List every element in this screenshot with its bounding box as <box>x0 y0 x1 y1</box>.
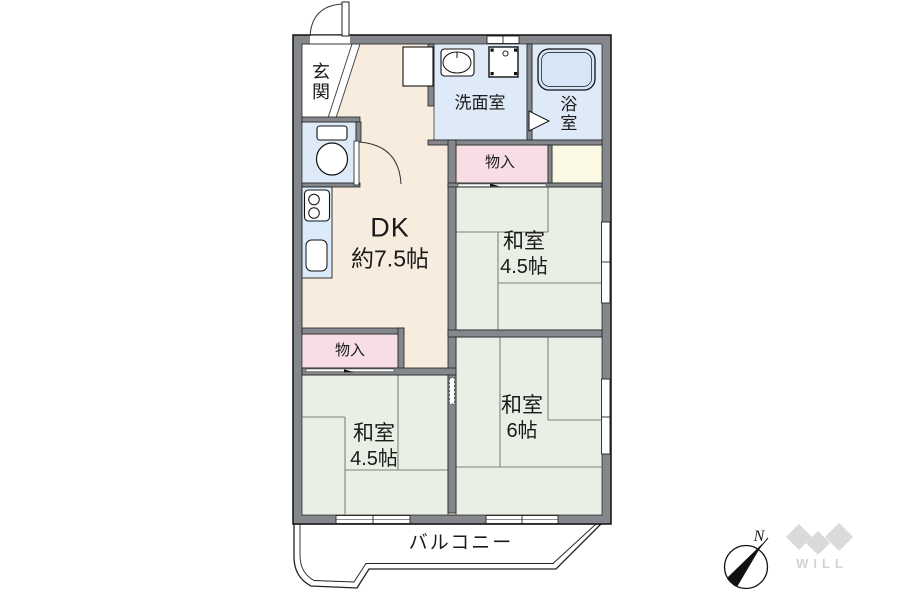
room-label-dk: DK 約7.5帖 <box>351 212 429 273</box>
floorplan-page: 玄関 洗面室 浴室 物入 物入 DK 約7.5帖 和室 4.5帖 和室 6帖 和… <box>0 0 900 601</box>
room-label-washitsu-lower-right: 和室 6帖 <box>501 393 543 443</box>
entrance-door-arc <box>310 4 342 36</box>
fusuma-door <box>450 378 455 404</box>
washing-machine-icon <box>489 47 518 77</box>
room-label-storage-top: 物入 <box>485 154 515 172</box>
floorplan-graphic <box>0 0 900 601</box>
will-logo-icon <box>786 523 853 555</box>
kitchen-sink-icon <box>306 240 327 271</box>
toilet-door-leaf <box>354 141 359 185</box>
toilet-icon <box>317 126 348 175</box>
room-label-storage-left: 物入 <box>335 342 365 360</box>
window-right-upper <box>602 222 611 303</box>
compass-north-label: N <box>754 527 765 547</box>
washbasin-icon <box>441 49 474 76</box>
will-logo-text: WILL <box>796 556 848 572</box>
shoe-cabinet <box>403 47 433 86</box>
entrance-door-leaf <box>342 2 349 36</box>
bathtub-icon <box>538 49 595 90</box>
entrance-door <box>310 2 350 44</box>
room-label-entrance: 玄関 <box>308 62 330 102</box>
kitchen-counter <box>302 187 332 278</box>
window-right-lower <box>602 379 611 454</box>
room-label-balcony: バルコニー <box>409 531 514 554</box>
room-label-bathroom: 浴室 <box>556 95 577 133</box>
room-label-washroom: 洗面室 <box>455 94 506 115</box>
closet-cream <box>552 145 602 183</box>
room-label-washitsu-lower-left: 和室 4.5帖 <box>350 421 398 471</box>
room-label-washitsu-upper-right: 和室 4.5帖 <box>500 229 548 279</box>
